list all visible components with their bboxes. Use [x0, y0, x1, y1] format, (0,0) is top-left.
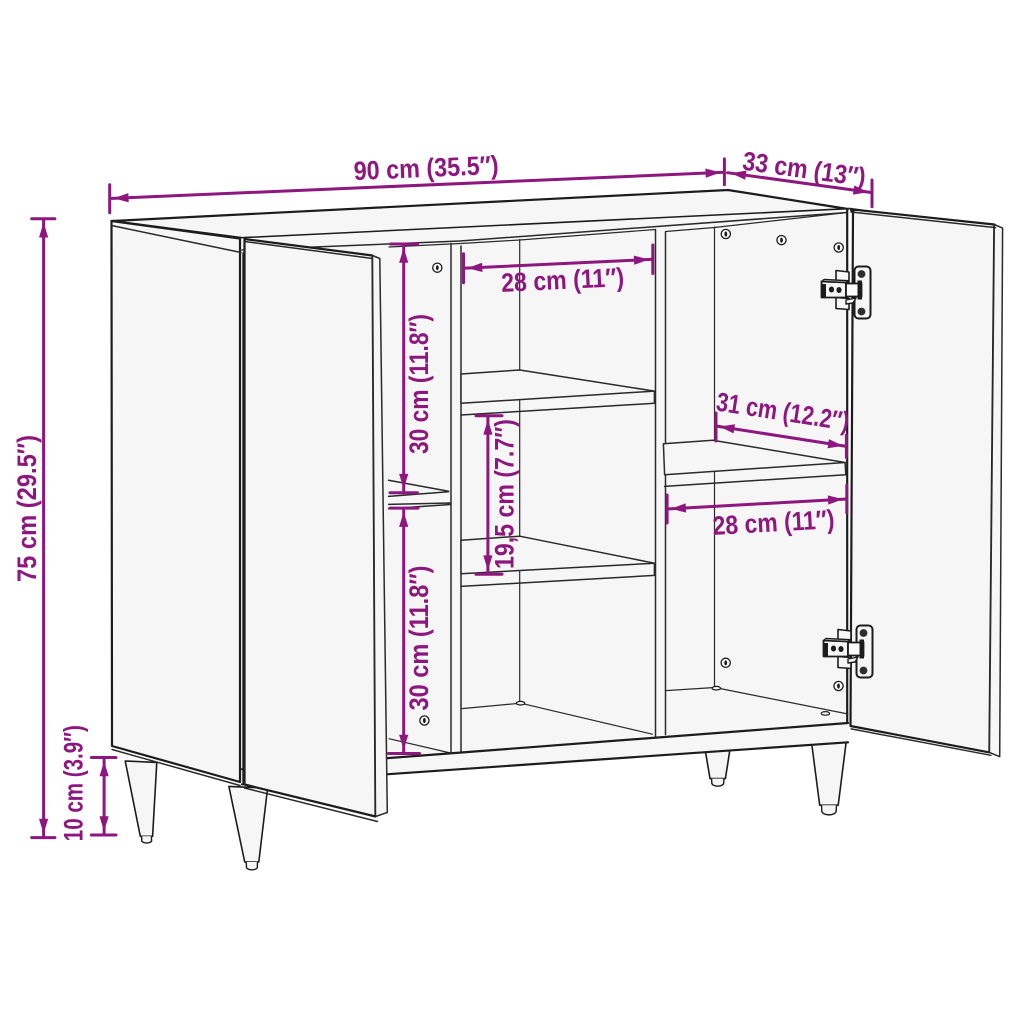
svg-text:75 cm (29.5″): 75 cm (29.5″)	[12, 435, 42, 582]
svg-text:28 cm (11″): 28 cm (11″)	[500, 262, 624, 298]
svg-text:10 cm (3.9″): 10 cm (3.9″)	[59, 725, 89, 841]
svg-text:30 cm (11.8″): 30 cm (11.8″)	[404, 566, 434, 711]
svg-text:90 cm (35.5″): 90 cm (35.5″)	[353, 150, 499, 186]
svg-text:19,5 cm (7.7″): 19,5 cm (7.7″)	[490, 419, 520, 569]
svg-text:30 cm (11.8″): 30 cm (11.8″)	[404, 314, 434, 454]
